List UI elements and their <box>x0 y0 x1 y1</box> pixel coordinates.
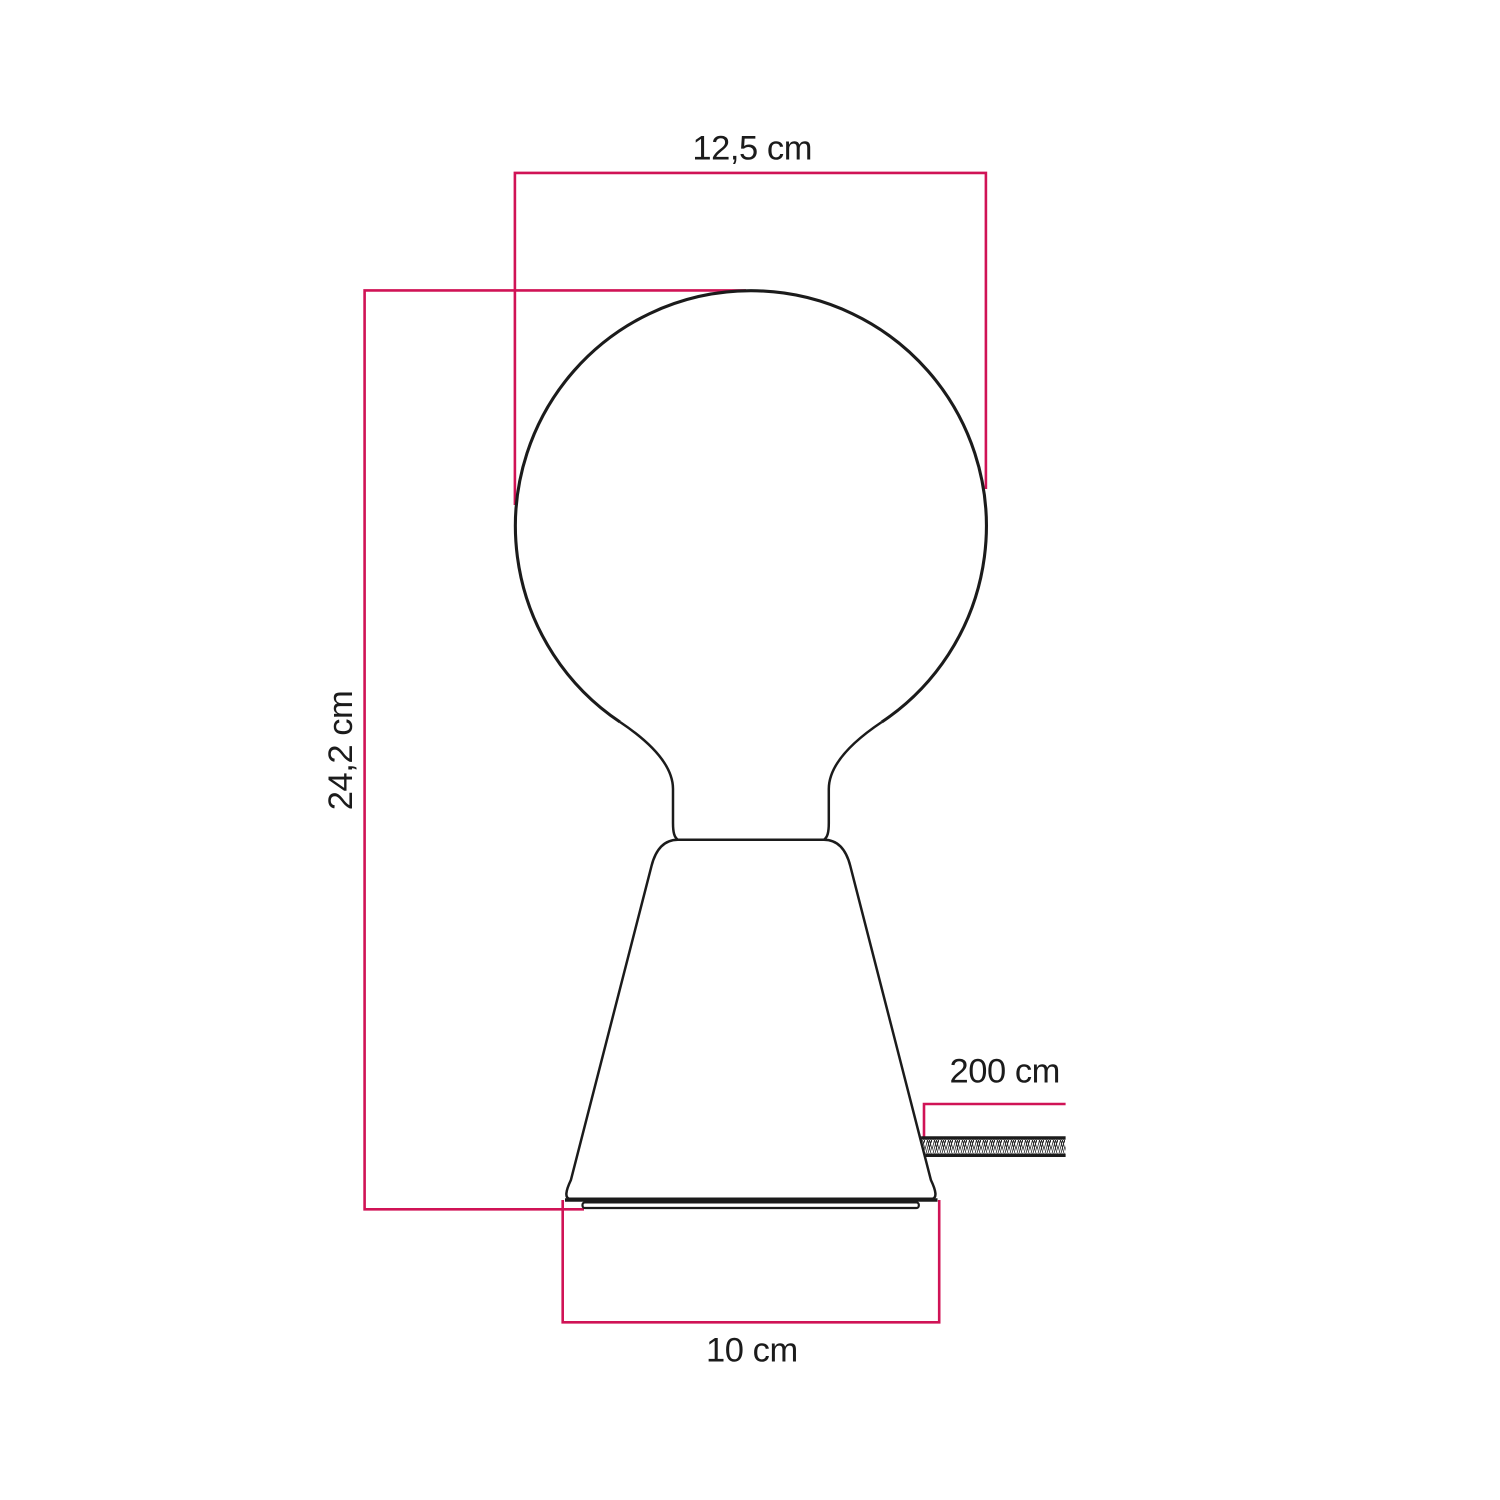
svg-text:24,2 cm: 24,2 cm <box>322 691 360 811</box>
svg-text:10 cm: 10 cm <box>706 1332 798 1370</box>
svg-text:200 cm: 200 cm <box>949 1053 1059 1091</box>
svg-text:12,5 cm: 12,5 cm <box>692 130 812 168</box>
